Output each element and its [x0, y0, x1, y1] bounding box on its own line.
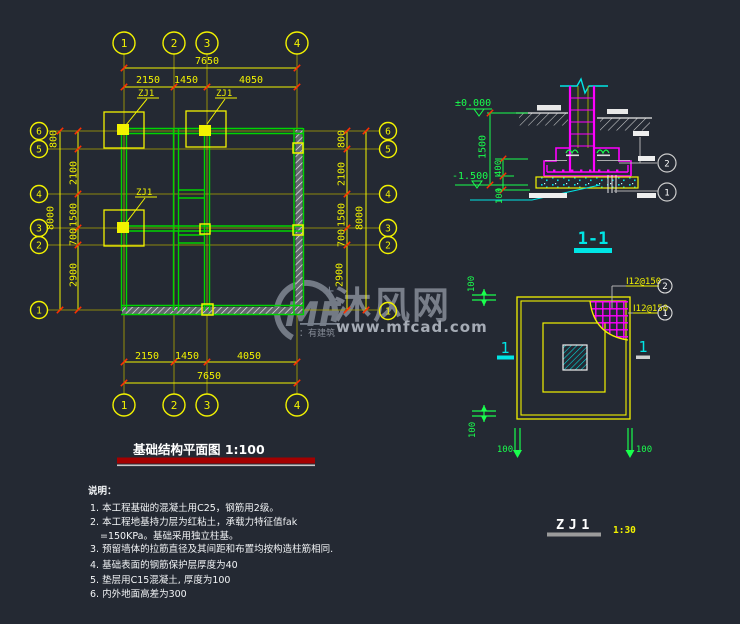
grade-beams: [121, 128, 304, 315]
axis-top-1: 1: [121, 37, 128, 50]
detail-dim-topleft: 100: [467, 276, 477, 292]
section-dim-1500: 1500: [478, 135, 489, 159]
dim-right-seg2: 2100: [337, 162, 348, 186]
note-5: 5. 垫层用C15混凝土, 厚度为100: [90, 574, 230, 586]
detail-column: [563, 345, 587, 370]
dim-left-seg4: 700: [69, 228, 80, 246]
column-a: [117, 124, 129, 135]
dim-bot-total: 7650: [197, 371, 221, 382]
section-dim-400: 400: [494, 160, 504, 176]
note-6: 6. 内外地面高差为300: [90, 588, 187, 600]
note-2b: =150KPa。基础采用独立柱基。: [100, 530, 238, 542]
detail-dim-botleft: 100: [468, 422, 478, 438]
section-column: [570, 86, 594, 172]
dim-bot-seg3: 4050: [237, 351, 261, 362]
dim-left-seg1: 800: [49, 130, 60, 148]
axis-right-5: 5: [385, 144, 391, 155]
axis-bot-3: 3: [204, 399, 211, 412]
detail-callout-1: 1: [662, 309, 667, 319]
axis-right-2: 2: [385, 240, 391, 251]
dim-top-seg3: 4050: [239, 75, 263, 86]
note-4: 4. 基础表面的钢筋保护层厚度为40: [90, 559, 238, 571]
detail-name: ZJ1: [556, 517, 594, 533]
dim-top-seg1: 2150: [136, 75, 160, 86]
title-underline-gray: [117, 465, 315, 467]
dim-right-seg3: 1500: [337, 203, 348, 227]
axis-bot-4: 4: [294, 399, 301, 412]
dim-top-seg2: 1450: [174, 75, 198, 86]
dim-right-total: 8000: [355, 206, 366, 230]
axis-bot-2: 2: [171, 399, 178, 412]
note-3: 3. 预留墙体的拉筋直径及其间距和布置均按构造柱筋相同.: [90, 543, 333, 555]
ground-hatch-left: [519, 114, 568, 126]
notes-heading: 说明：: [88, 485, 117, 497]
dim-right-seg5: 2900: [335, 263, 346, 287]
detail-name-bar: [547, 533, 601, 537]
section-mark-left: 1: [500, 339, 509, 357]
wall-bottom: [122, 307, 302, 314]
elev-top: ±0.000: [455, 98, 491, 109]
axis-left-6: 6: [36, 126, 42, 137]
axis-left-3: 3: [36, 223, 42, 234]
section-dim-100: 100: [495, 188, 505, 204]
axis-top-3: 3: [204, 37, 211, 50]
dim-top-total: 7650: [195, 56, 219, 67]
axis-right-4: 4: [385, 189, 391, 200]
section-title: 1-1: [578, 229, 609, 249]
elev-bottom: -1.500: [452, 171, 488, 182]
detail-callout-2: 2: [662, 282, 667, 292]
dim-right-seg4: 700: [337, 229, 348, 247]
foundation-plan: 7650 2150 1450 4050 2150 1450 4050 7650 …: [31, 32, 397, 416]
zj-labels: ZJ1 ZJ1 ZJ1: [126, 89, 237, 223]
dim-left-seg5: 2900: [69, 263, 80, 287]
break-line: [560, 79, 608, 93]
axis-right-6: 6: [385, 126, 391, 137]
axis-top-4: 4: [294, 37, 301, 50]
dim-bot-seg2: 1450: [175, 351, 199, 362]
stirrup-hook: [566, 150, 578, 153]
detail-dim-bot2: 100: [636, 445, 652, 455]
bedding-layer: [536, 177, 638, 188]
watermark-tagline: ：有建筑: [299, 327, 335, 339]
wall-right: [296, 130, 303, 313]
plan-title: 基础结构平面图 1:100: [132, 442, 265, 457]
axis-bot-1: 1: [121, 399, 128, 412]
detail-scale: 1:30: [613, 525, 636, 536]
notes: 说明： 1. 本工程基础的混凝土用C25，钢筋用2级。 2. 本工程地基持力层为…: [88, 485, 333, 600]
axis-left-1: 1: [36, 305, 42, 316]
hatched-walls: [122, 130, 303, 314]
dim-left-seg2: 2100: [69, 161, 80, 185]
axis-left-2: 2: [36, 240, 42, 251]
cad-drawing: MF + 沐风网 www.mfcad.com ：有建筑: [0, 0, 740, 624]
section-callout-2: 2: [664, 159, 669, 169]
detail-label-block: ZJ1 1:30: [547, 517, 636, 537]
title-underline-red: [117, 458, 315, 464]
axis-grid-lines: [48, 54, 379, 394]
section-1-1: 2 1 ±0.000 -1.500 1500: [452, 79, 676, 253]
dim-bot-seg1: 2150: [135, 351, 159, 362]
axis-right-3: 3: [385, 223, 391, 234]
section-title-bar: [574, 248, 612, 253]
axis-top-2: 2: [171, 37, 178, 50]
cad-drawing-canvas: MF + 沐风网 www.mfcad.com ：有建筑: [0, 0, 740, 624]
plan-title-block: 基础结构平面图 1:100: [117, 442, 315, 466]
detail-dim-bot1: 100: [497, 445, 513, 455]
column-b: [199, 125, 211, 136]
section-footing: [536, 148, 638, 193]
ground-hatch-right: [600, 119, 650, 131]
dim-left-seg3: 1500: [69, 203, 80, 227]
text-blob: [537, 105, 561, 111]
section-callout-1: 1: [664, 188, 669, 198]
dim-right-seg1: 800: [337, 130, 348, 148]
stirrup-hook: [597, 150, 609, 153]
note-2: 2. 本工程地基持力层为红粘土，承载力特征值fak: [90, 516, 298, 528]
axis-left-5: 5: [36, 144, 42, 155]
column-c: [117, 222, 129, 233]
watermark-url: www.mfcad.com: [336, 318, 488, 336]
text-blob: [607, 109, 628, 114]
axis-left-4: 4: [36, 189, 42, 200]
detail-zj1: Ⅰ12@150 2 Ⅰ12@150 1: [467, 276, 672, 537]
axis-right-1: 1: [385, 306, 391, 317]
section-mark-right: 1: [638, 338, 647, 356]
note-1: 1. 本工程基础的混凝土用C25，钢筋用2级。: [90, 502, 279, 514]
rebar-label-top: Ⅰ12@150: [626, 277, 661, 287]
